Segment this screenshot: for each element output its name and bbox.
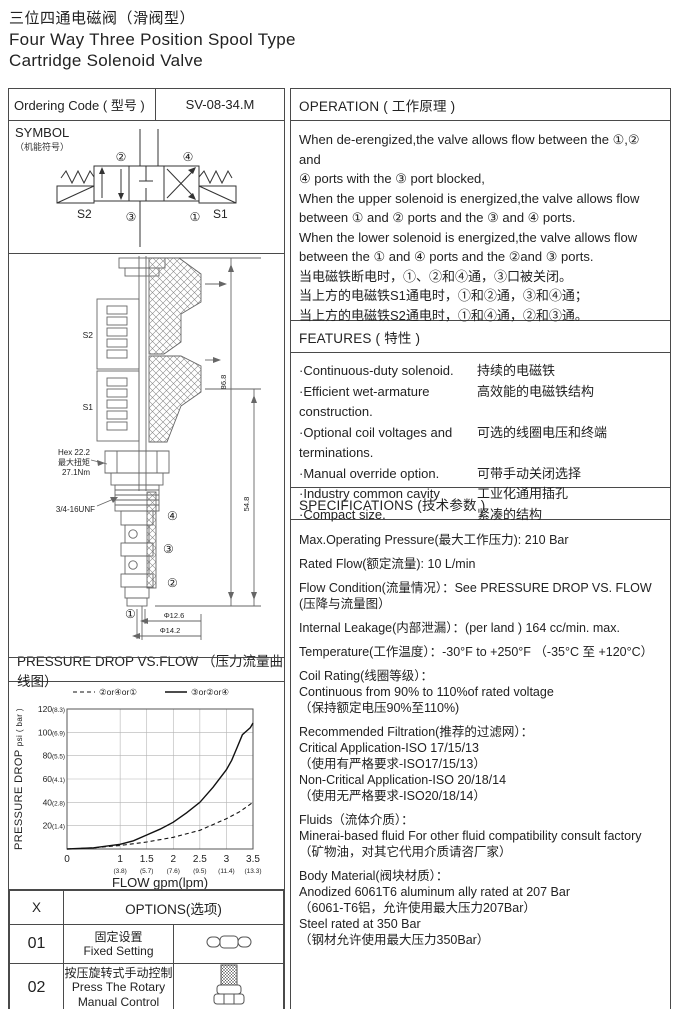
option-en: Fixed Setting xyxy=(64,944,173,959)
svg-text:FLOW gpm(lpm): FLOW gpm(lpm) xyxy=(112,875,208,889)
symbol-s1-label: S1 xyxy=(213,207,228,221)
symbol-subtitle: （机能符号） xyxy=(15,140,69,153)
hex-size-label: Hex 22.2 xyxy=(58,448,91,457)
right-column: OPERATION ( 工作原理 ) When de-erengized,the… xyxy=(290,88,671,1009)
svg-text:PRESSURE DROP psi ( bar ): PRESSURE DROP psi ( bar ) xyxy=(13,708,25,850)
svg-text:40(2.8): 40(2.8) xyxy=(43,797,65,807)
spec-paragraph: Internal Leakage(内部泄漏）：(per land ) 164 c… xyxy=(299,620,666,636)
drawing-port-3: ③ xyxy=(163,542,174,556)
operation-header: OPERATION ( 工作原理 ) xyxy=(291,89,670,121)
option-code: 02 xyxy=(10,964,64,1009)
svg-text:3: 3 xyxy=(224,854,230,865)
svg-text:100(6.9): 100(6.9) xyxy=(38,727,65,737)
option-description: 固定设置 Fixed Setting xyxy=(64,925,174,964)
pressure-flow-plot: 20(1.4)40(2.8)60(4.1)80(5.5)100(6.9)120(… xyxy=(9,682,286,889)
page-title: 三位四通电磁阀（滑阀型） Four Way Three Position Spo… xyxy=(9,8,296,71)
spec-paragraph: Coil Rating(线圈等级）： Continuous from 90% t… xyxy=(299,668,666,716)
datasheet-page: 三位四通电磁阀（滑阀型） Four Way Three Position Spo… xyxy=(0,0,680,1009)
feature-zh: 高效能的电磁铁结构 xyxy=(477,382,670,423)
feature-item: ·Continuous-duty solenoid.持续的电磁铁 xyxy=(299,361,670,382)
svg-text:80(5.5): 80(5.5) xyxy=(43,751,65,761)
symbol-port-2: ② xyxy=(116,150,127,164)
symbol-port-3: ③ xyxy=(126,210,137,224)
spec-paragraph: Fluids（流体介质）： Minerai-based fluid For ot… xyxy=(299,812,666,860)
ordering-code-value: SV-08-34.M xyxy=(156,97,284,112)
feature-item: ·Optional coil voltages and terminations… xyxy=(299,423,670,464)
title-chinese: 三位四通电磁阀（滑阀型） xyxy=(9,8,296,29)
svg-text:(9.5): (9.5) xyxy=(193,868,206,875)
rotary-knob-icon xyxy=(209,964,249,1006)
torque-value-label: 27.1Nm xyxy=(62,468,90,477)
svg-text:(11.4): (11.4) xyxy=(218,868,235,875)
options-col-title: OPTIONS(选项) xyxy=(64,891,284,925)
svg-text:2: 2 xyxy=(171,854,177,865)
spec-paragraph: Rated Flow(额定流量): 10 L/min xyxy=(299,556,666,572)
svg-text:(13.3): (13.3) xyxy=(245,868,262,875)
valve-cross-section: S2 S1 Hex 22.2 最大扭矩 27.1Nm 3/4-16UNF 86.… xyxy=(9,254,286,657)
title-english-line1: Four Way Three Position Spool Type xyxy=(9,29,296,50)
svg-text:1.5: 1.5 xyxy=(140,854,154,865)
drawing-port-2: ② xyxy=(167,576,178,590)
spec-paragraph: Flow Condition(流量情况）：See PRESSURE DROP V… xyxy=(299,580,666,612)
svg-text:②or④or①: ②or④or① xyxy=(99,687,137,697)
title-english-line2: Cartridge Solenoid Valve xyxy=(9,50,296,71)
svg-text:(7.6): (7.6) xyxy=(167,868,180,875)
feature-item: ·Efficient wet-armature construction.高效能… xyxy=(299,382,670,423)
option-row-01: 01 固定设置 Fixed Setting xyxy=(10,925,284,964)
svg-text:20(1.4): 20(1.4) xyxy=(43,821,65,831)
dim-total-height: 86.8 xyxy=(219,375,228,390)
spec-paragraph: Temperature(工作温度）：-30°F to +250°F （-35°C… xyxy=(299,644,666,660)
fixed-setting-icon xyxy=(206,934,252,950)
feature-zh: 持续的电磁铁 xyxy=(477,361,670,382)
symbol-port-1: ① xyxy=(190,210,201,224)
cross-section-drawing: S2 S1 Hex 22.2 最大扭矩 27.1Nm 3/4-16UNF 86.… xyxy=(9,254,284,658)
feature-en: ·Efficient wet-armature construction. xyxy=(299,382,477,423)
features-list: ·Continuous-duty solenoid.持续的电磁铁 ·Effici… xyxy=(291,353,670,488)
drawing-port-1: ① xyxy=(125,607,136,621)
drawing-coil-s2: S2 xyxy=(83,330,94,340)
features-header: FEATURES ( 特性 ) xyxy=(291,321,670,353)
svg-text:120(8.3): 120(8.3) xyxy=(38,704,65,714)
svg-text:1: 1 xyxy=(117,854,123,865)
symbol-heading: SYMBOL （机能符号） xyxy=(15,125,69,153)
spec-paragraph: Body Material(阀块材质）： Anodized 6061T6 alu… xyxy=(299,868,666,948)
svg-text:3.5: 3.5 xyxy=(246,854,260,865)
option-zh: 固定设置 xyxy=(64,930,173,945)
max-torque-label: 最大扭矩 xyxy=(58,457,90,467)
option-en: Press The Rotary Manual Control xyxy=(64,980,173,1009)
spec-paragraph: Recommended Filtration(推荐的过滤网）： Critical… xyxy=(299,724,666,804)
pressure-drop-chart: 20(1.4)40(2.8)60(4.1)80(5.5)100(6.9)120(… xyxy=(9,682,284,890)
option-zh: 按压旋转式手动控制 xyxy=(64,966,173,981)
operation-text: When de-erengized,the valve allows flow … xyxy=(291,121,670,321)
symbol-title: SYMBOL xyxy=(15,125,69,140)
feature-zh: 工业化通用插孔 xyxy=(477,484,670,505)
ordering-code-row: Ordering Code ( 型号 ) SV-08-34.M xyxy=(9,89,284,121)
symbol-port-4: ④ xyxy=(183,150,194,164)
feature-item: ·Manual override option.可带手动关闭选择 xyxy=(299,464,670,485)
feature-zh: 紧凑的结构 xyxy=(477,505,670,526)
option-row-02: 02 按压旋转式手动控制 Press The Rotary Manual Con… xyxy=(10,964,284,1009)
svg-text:0: 0 xyxy=(64,854,70,865)
symbol-s2-label: S2 xyxy=(77,207,92,221)
symbol-section: SYMBOL （机能符号） xyxy=(9,121,284,254)
svg-text:(5.7): (5.7) xyxy=(140,868,153,875)
left-column: Ordering Code ( 型号 ) SV-08-34.M SYMBOL （… xyxy=(8,88,285,1009)
option-description: 按压旋转式手动控制 Press The Rotary Manual Contro… xyxy=(64,964,174,1009)
pressure-drop-section-header: PRESSURE DROP VS.FLOW （压力流量曲线图） xyxy=(9,658,284,682)
svg-text:③or②or④: ③or②or④ xyxy=(191,687,229,697)
svg-text:(3.8): (3.8) xyxy=(113,868,126,875)
ordering-code-label: Ordering Code ( 型号 ) xyxy=(9,89,156,120)
options-table: X OPTIONS(选项) 01 固定设置 Fixed Setting xyxy=(9,890,284,1009)
dim-diameter-1: Φ12.6 xyxy=(164,611,185,620)
content-grid: Ordering Code ( 型号 ) SV-08-34.M SYMBOL （… xyxy=(8,88,671,1009)
feature-en: ·Manual override option. xyxy=(299,464,477,485)
options-col-x: X xyxy=(10,891,64,925)
dim-diameter-2: Φ14.2 xyxy=(160,626,181,635)
drawing-coil-s1: S1 xyxy=(83,402,94,412)
svg-text:2.5: 2.5 xyxy=(193,854,207,865)
spec-paragraph: Max.Operating Pressure(最大工作压力): 210 Bar xyxy=(299,532,666,548)
feature-zh: 可带手动关闭选择 xyxy=(477,464,670,485)
feature-en: ·Continuous-duty solenoid. xyxy=(299,361,477,382)
drawing-port-4: ④ xyxy=(167,509,178,523)
option-code: 01 xyxy=(10,925,64,964)
feature-en: ·Optional coil voltages and terminations… xyxy=(299,423,477,464)
thread-label: 3/4-16UNF xyxy=(56,505,95,514)
svg-text:60(4.1): 60(4.1) xyxy=(43,774,65,784)
feature-zh: 可选的线圈电压和终端 xyxy=(477,423,670,464)
dim-lower-height: 54.8 xyxy=(242,497,251,512)
options-header-row: X OPTIONS(选项) xyxy=(10,891,284,925)
specifications-list: Max.Operating Pressure(最大工作压力): 210 Bar … xyxy=(291,520,670,1009)
option-icon-cell xyxy=(174,964,284,1009)
option-icon-cell xyxy=(174,925,284,964)
